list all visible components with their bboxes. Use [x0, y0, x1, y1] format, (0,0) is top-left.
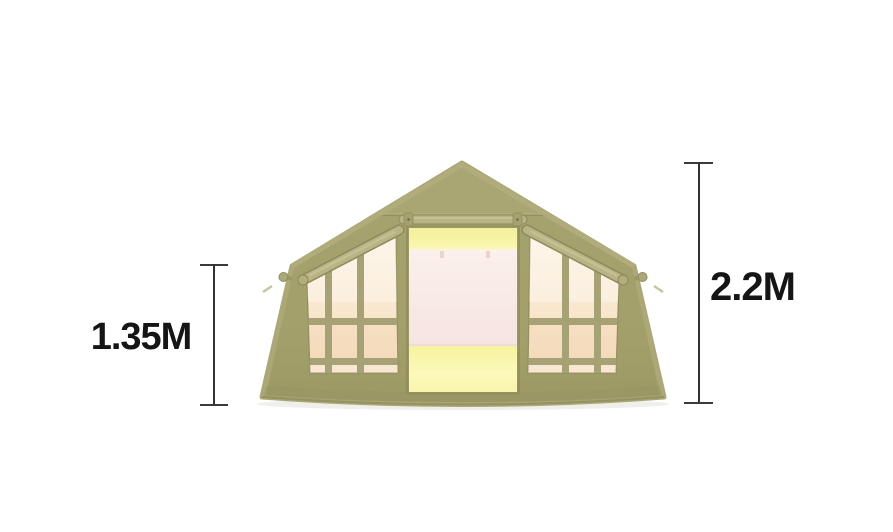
door-hook	[440, 251, 444, 258]
dimension-vline	[698, 162, 700, 404]
window-right-bottom-sheen	[525, 364, 620, 373]
tent-door	[406, 227, 520, 394]
tent-roof	[376, 163, 548, 215]
mullion	[524, 318, 624, 325]
dimension-line-wall-height	[200, 264, 228, 406]
door-glow-bottom	[409, 346, 517, 392]
window-right-mid-tint	[525, 325, 621, 358]
roll-bar-pin	[516, 218, 519, 221]
dimension-vline	[213, 264, 215, 406]
window-left-mid-tint	[305, 325, 401, 358]
dimension-cap-bottom	[684, 402, 713, 404]
roll-bar-pin	[407, 218, 410, 221]
air-tube-left-cap	[298, 275, 308, 285]
product-dimension-figure: 1.35M 2.2M	[0, 0, 893, 532]
door-hook	[486, 251, 490, 258]
door-roll-bar	[399, 213, 527, 226]
dimension-line-peak-height	[684, 162, 713, 404]
dimension-cap-bottom	[200, 404, 228, 406]
peak-height-label: 2.2M	[710, 267, 795, 307]
mullion	[524, 358, 624, 365]
door-panel	[409, 249, 517, 346]
air-tube-right-cap	[618, 275, 628, 285]
mullion	[302, 318, 402, 325]
door-jamb-right	[517, 228, 520, 392]
door-glow-top	[409, 228, 517, 249]
door-jamb-left	[406, 228, 409, 392]
mullion	[302, 358, 402, 365]
wall-height-label: 1.35M	[84, 318, 198, 356]
window-left-bottom-sheen	[306, 364, 401, 373]
